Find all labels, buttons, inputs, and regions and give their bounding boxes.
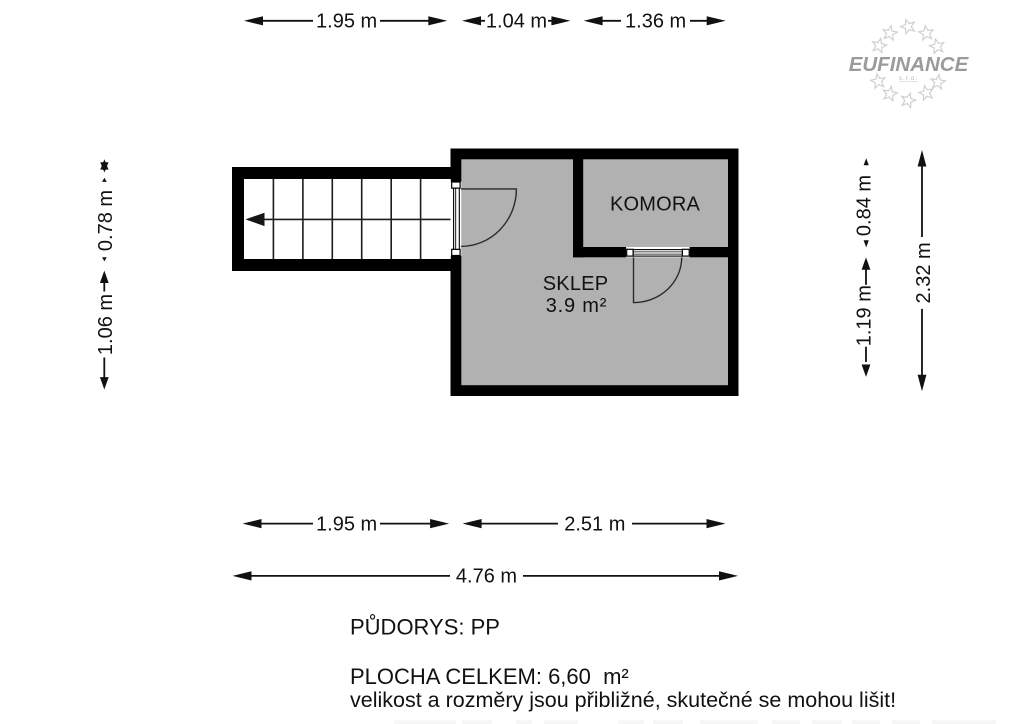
svg-text:1.95 m: 1.95 m <box>316 513 377 535</box>
svg-text:SKLEP: SKLEP <box>543 273 608 295</box>
svg-text:1.36 m: 1.36 m <box>625 11 686 33</box>
svg-text:4.76 m: 4.76 m <box>456 566 517 588</box>
svg-text:KOMORA: KOMORA <box>610 193 701 215</box>
svg-text:0.84 m: 0.84 m <box>854 175 876 236</box>
svg-text:2.32 m: 2.32 m <box>913 242 935 303</box>
svg-text:1.06 m: 1.06 m <box>95 294 117 355</box>
svg-text:1.95 m: 1.95 m <box>316 11 377 33</box>
svg-text:2.51 m: 2.51 m <box>564 513 625 535</box>
svg-text:1.04 m: 1.04 m <box>486 11 547 33</box>
svg-text:velikost a rozměry jsou přibli: velikost a rozměry jsou přibližné, skute… <box>350 688 896 712</box>
svg-text:PLOCHA CELKEM: 6,60 m²: PLOCHA CELKEM: 6,60 m² <box>350 664 629 689</box>
svg-text:0.78 m: 0.78 m <box>95 190 117 251</box>
svg-text:1.19 m: 1.19 m <box>854 285 876 346</box>
svg-text:3.9 m²: 3.9 m² <box>546 295 607 317</box>
svg-text:EUFINANCE: EUFINANCE <box>849 53 970 76</box>
svg-text:PŮDORYS: PP: PŮDORYS: PP <box>350 614 500 639</box>
